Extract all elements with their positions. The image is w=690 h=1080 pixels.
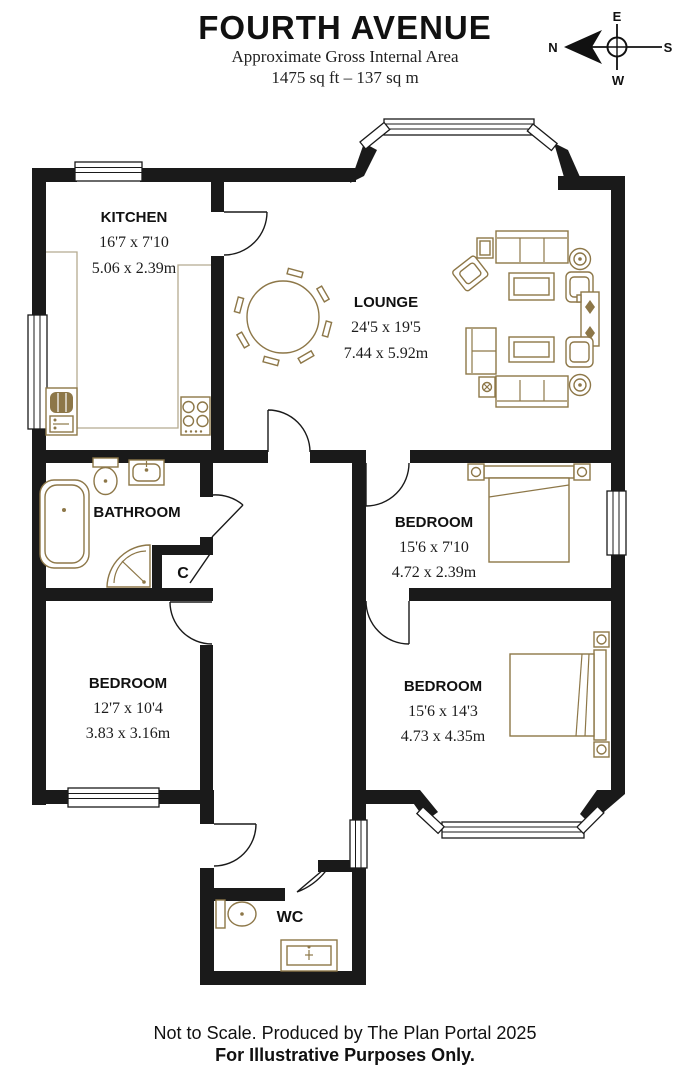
bedroom-bottom-door: [366, 601, 409, 644]
bed-headboard: [484, 466, 574, 478]
wc-label: WC: [277, 909, 304, 926]
kitchen-hob: [181, 397, 210, 435]
bedroom-bottom-dim-imperial: 15'6 x 14'3: [408, 703, 478, 720]
armchair-right-bottom: [566, 337, 593, 367]
bedroom-bottom-furniture: [510, 632, 609, 757]
bedroom-right-furniture: [468, 464, 590, 562]
nightstand: [468, 464, 484, 480]
cupboard-door: [190, 551, 212, 583]
side-table-bottom: [479, 377, 495, 397]
bed-headboard: [594, 650, 606, 740]
plan-footer: Not to Scale. Produced by The Plan Porta…: [0, 1022, 690, 1066]
bathroom-label: BATHROOM: [93, 504, 180, 521]
nightstand: [594, 632, 609, 647]
bedroom-right-dim-imperial: 15'6 x 7'10: [399, 539, 469, 556]
disclaimer-line1: Not to Scale. Produced by The Plan Porta…: [0, 1022, 690, 1044]
round-table-top: [570, 249, 591, 270]
bedroom-right-label: BEDROOM: [395, 514, 473, 531]
compass-east: E: [613, 9, 622, 24]
bedroom-right-door: [366, 463, 409, 506]
coffee-table-bottom: [509, 337, 554, 362]
bedroom-left-door: [170, 602, 212, 644]
compass-west: W: [612, 73, 625, 88]
bathroom-fixtures: [40, 458, 164, 587]
kitchen-dim-imperial: 16'7 x 7'10: [99, 234, 169, 251]
bathroom-door: [212, 495, 243, 537]
sofa-bottom: [496, 376, 568, 407]
nightstand: [594, 742, 609, 757]
kitchen-label: KITCHEN: [101, 209, 168, 226]
coffee-table-top: [509, 273, 554, 300]
compass-north: N: [548, 40, 557, 55]
floor-plan: E W N S: [0, 0, 690, 1080]
kitchen-sink: [46, 388, 77, 435]
bedroom-left-window: [68, 788, 159, 807]
hall-window: [350, 820, 367, 868]
kitchen-dim-metric: 5.06 x 2.39m: [92, 260, 177, 277]
lounge-dim-imperial: 24'5 x 19'5: [351, 319, 421, 336]
bedroom-right-window: [607, 491, 626, 555]
bedroom-left-dim-metric: 3.83 x 3.16m: [86, 725, 171, 742]
dining-table: [234, 268, 331, 365]
bedroom-left-label: BEDROOM: [89, 675, 167, 692]
disclaimer-line2: For Illustrative Purposes Only.: [0, 1044, 690, 1066]
lounge-label: LOUNGE: [354, 294, 418, 311]
lounge-dim-metric: 7.44 x 5.92m: [344, 345, 429, 362]
wc-door: [297, 864, 330, 892]
armchair-corner: [452, 255, 489, 292]
side-table-top: [477, 238, 493, 258]
bay-window-lounge: [360, 119, 557, 151]
bathtub: [40, 480, 89, 568]
lounge-door: [268, 410, 310, 452]
bay-window-bedroom-bottom: [417, 806, 604, 838]
toilet: [93, 458, 118, 495]
bedroom-bottom-label: BEDROOM: [404, 678, 482, 695]
bedroom-right-dim-metric: 4.72 x 2.39m: [392, 564, 477, 581]
round-table-bottom: [570, 375, 591, 396]
wc-sink: [281, 940, 337, 971]
bedroom-bottom-dim-metric: 4.73 x 4.35m: [401, 728, 486, 745]
kitchen-left-window: [28, 315, 47, 429]
kitchen-door: [224, 212, 267, 255]
kitchen-top-window: [75, 162, 142, 181]
compass-south: S: [664, 40, 673, 55]
cupboard-label: C: [177, 565, 189, 582]
wc-toilet: [216, 900, 256, 928]
sofa-top: [496, 231, 568, 263]
kitchen-fixtures: [46, 252, 211, 435]
bedroom-left-dim-imperial: 12'7 x 10'4: [93, 700, 163, 717]
front-door: [214, 824, 256, 866]
shower: [107, 545, 150, 587]
nightstand: [574, 464, 590, 480]
bathroom-sink: [129, 460, 164, 485]
compass-rose-icon: E W N S: [548, 9, 672, 88]
sofa-left: [466, 328, 496, 374]
